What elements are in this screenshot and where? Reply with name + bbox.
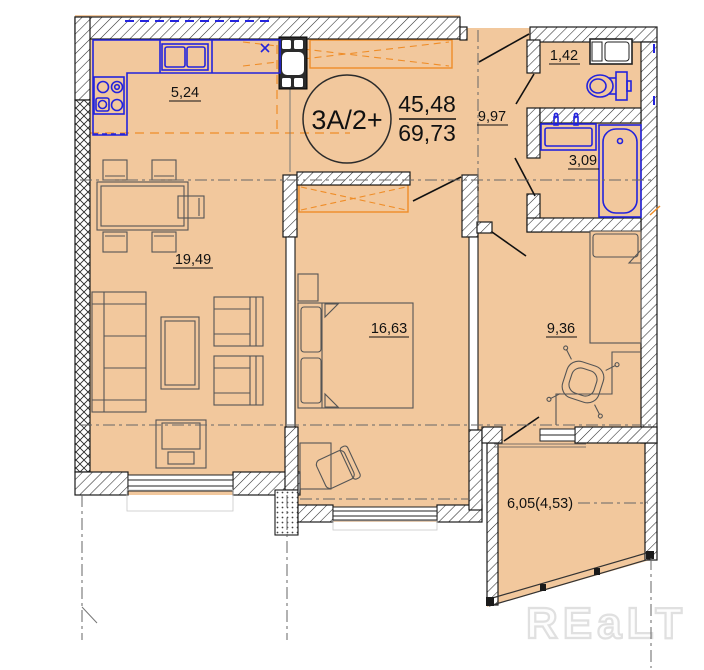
bedroom-main-top-wall — [297, 172, 410, 185]
balcony-wall-left — [487, 443, 498, 605]
balcony-wall-right — [645, 443, 657, 560]
bedroom-main-left-wall — [286, 237, 295, 427]
bedroom-main-right-wall — [469, 237, 478, 430]
living-area-label: 19,49 — [175, 252, 211, 268]
wall-left-upper — [75, 17, 90, 100]
wc-area-label: 1,42 — [550, 48, 578, 64]
floor-plan: REaLT — [0, 0, 704, 670]
bedroom-main-window — [333, 507, 437, 520]
wall-left-lower — [75, 100, 90, 472]
bathroom-bottom-wall — [527, 218, 641, 232]
watermark: REaLT — [526, 599, 687, 648]
bedroom-second-area-label: 9,36 — [547, 321, 575, 337]
hallway-area-label: 9,97 — [478, 109, 506, 125]
living-area-value: 45,48 — [398, 91, 456, 117]
bedroom-main-area-label: 16,63 — [371, 321, 407, 337]
living-window — [128, 475, 233, 491]
washing-machine — [590, 39, 632, 64]
total-area-value: 69,73 — [398, 120, 456, 146]
utility-shaft — [279, 37, 307, 89]
balcony-area-label: 6,05(4,53) — [507, 496, 573, 512]
plan-type-label: 3A/2+ — [311, 105, 382, 135]
bathroom-area-label: 3,09 — [569, 153, 597, 169]
kitchen-area-label: 5,24 — [171, 85, 199, 101]
bed-second — [590, 231, 641, 343]
bed-main — [298, 303, 413, 408]
floor-plan-page: REaLT — [0, 0, 704, 670]
balcony-floor — [487, 443, 657, 607]
